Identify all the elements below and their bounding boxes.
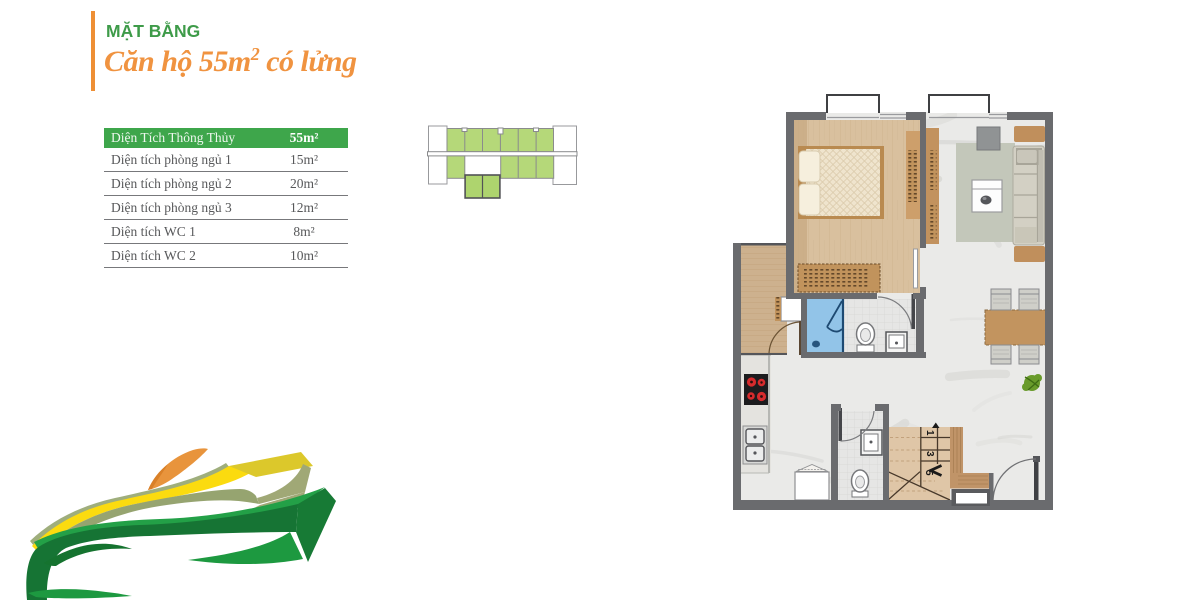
svg-text:3: 3: [924, 451, 935, 457]
svg-text:5: 5: [923, 470, 934, 476]
svg-text:1: 1: [924, 430, 935, 436]
